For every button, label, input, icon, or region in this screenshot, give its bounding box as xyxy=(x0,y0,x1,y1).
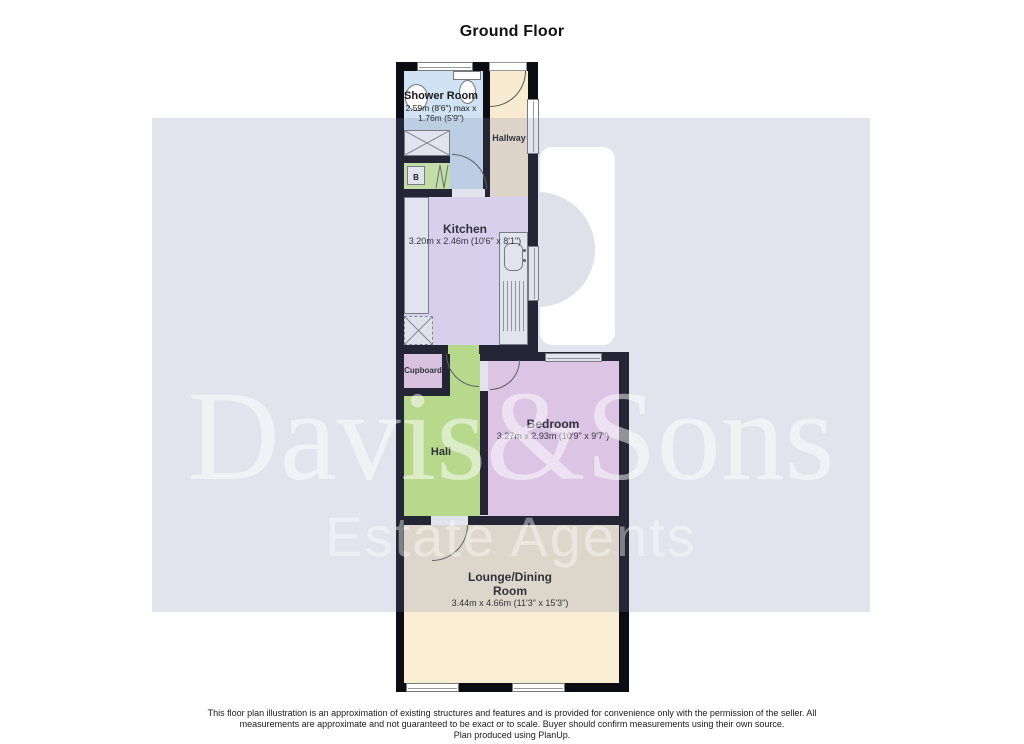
window xyxy=(512,683,565,692)
room-name: Shower Room xyxy=(397,90,485,103)
watermark-logo-panel xyxy=(540,147,615,345)
window xyxy=(406,683,459,692)
entry-door xyxy=(489,62,527,71)
disclaimer-line: Plan produced using PlanUp. xyxy=(0,730,1024,741)
disclaimer-line: This floor plan illustration is an appro… xyxy=(0,708,1024,719)
window xyxy=(417,62,473,71)
watermark-agency-name: Davis&Sons xyxy=(152,376,870,496)
disclaimer: This floor plan illustration is an appro… xyxy=(0,708,1024,741)
page-title: Ground Floor xyxy=(0,23,1024,41)
toilet-cistern-icon xyxy=(453,71,481,80)
watermark-logo-disc xyxy=(540,192,595,307)
watermark-tagline: Estate Agents xyxy=(152,508,870,566)
floorplan-page: Ground Floor Davis&Sons Estate Agents xyxy=(0,0,1024,744)
disclaimer-line: measurements are approximate and not gua… xyxy=(0,719,1024,730)
